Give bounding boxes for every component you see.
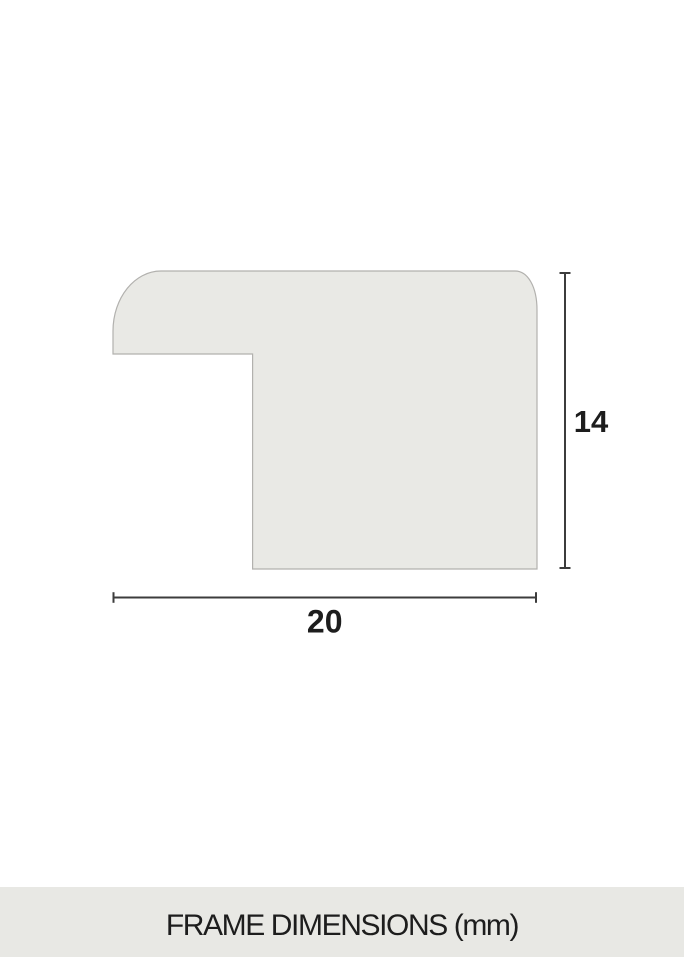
svg-text:20: 20 bbox=[307, 604, 343, 640]
svg-text:14: 14 bbox=[574, 404, 609, 439]
